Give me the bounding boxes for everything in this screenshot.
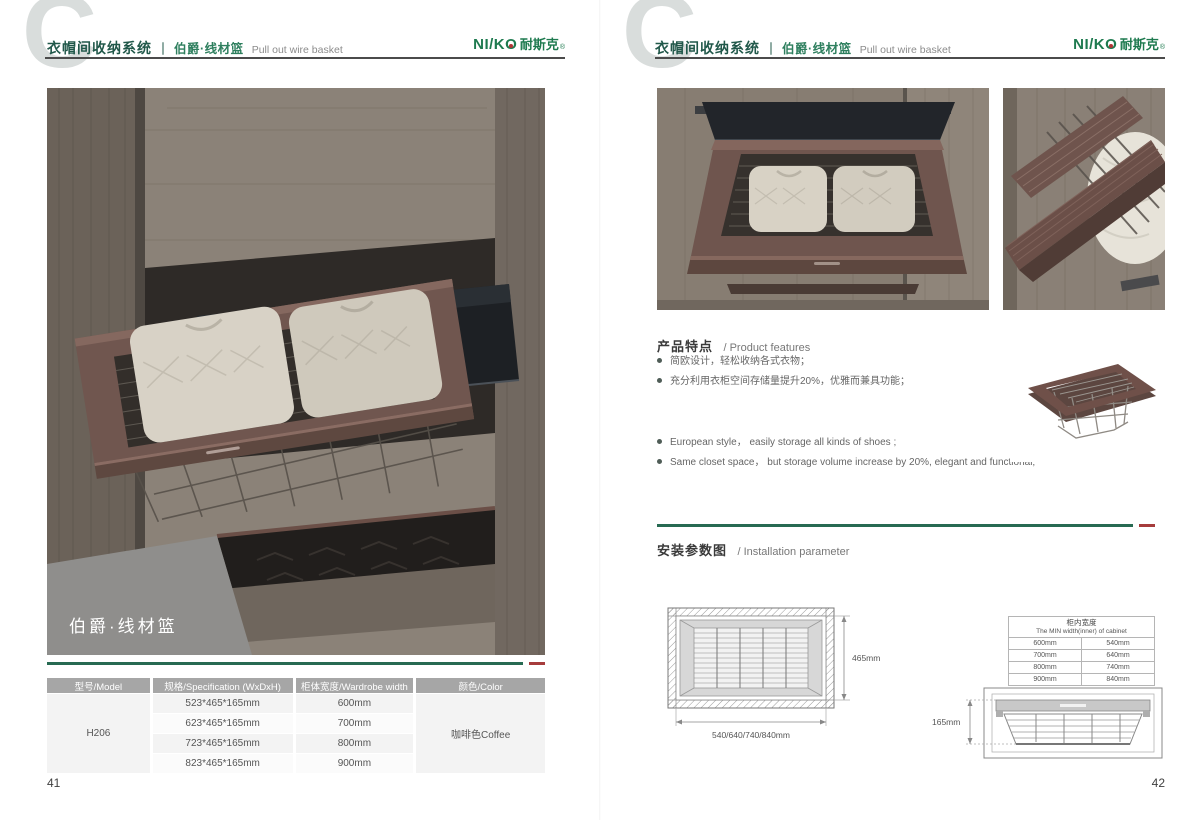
topview-diagram: 465mm 540/640/740/840mm	[660, 600, 890, 767]
min-width-table-title: 柜内宽度 The MIN width(inner) of cabinet	[1009, 617, 1155, 638]
sideview-drawing: 165mm	[932, 684, 1172, 764]
sideview-diagram: 165mm	[932, 684, 1172, 769]
header-divider: ｜	[157, 40, 169, 57]
detail-photo-corner	[1003, 88, 1165, 310]
accent-green-bar	[657, 524, 1133, 527]
basket-topdown-illustration	[657, 88, 989, 310]
table-row: 600mm 540mm	[1009, 638, 1155, 650]
cell-width-0: 600mm	[296, 694, 414, 713]
page-header: 衣帽间收纳系统 ｜ 伯爵·线材篮 Pull out wire basket	[47, 38, 343, 58]
accent-red-bar	[1139, 524, 1155, 527]
registered-mark: ®	[1160, 44, 1165, 51]
cell-spec-1: 623*465*165mm	[153, 714, 293, 733]
cell-width-3: 900mm	[296, 754, 414, 773]
cell-spec-0: 523*465*165mm	[153, 694, 293, 713]
table-row: 700mm 640mm	[1009, 650, 1155, 662]
nisko-logo: NI/KO 耐斯克 ®	[1073, 34, 1165, 53]
page-spine-divider	[599, 0, 601, 820]
header-product-subtitle: Pull out wire basket	[252, 44, 343, 56]
detail-photo-top	[657, 88, 989, 310]
wire-basket-render-illustration	[1010, 330, 1168, 462]
col-header-model: 型号/Model	[47, 678, 150, 693]
depth-dimension-label: 465mm	[852, 653, 880, 663]
registered-mark: ®	[560, 44, 565, 51]
wardrobe-photo-illustration	[47, 88, 545, 655]
catalog-spread: C 衣帽间收纳系统 ｜ 伯爵·线材篮 Pull out wire basket …	[0, 0, 1200, 820]
accent-green-bar	[47, 662, 523, 665]
cell-width-1: 700mm	[296, 714, 414, 733]
page-number-right: 42	[1152, 776, 1165, 790]
nisko-logo: NI/KO 耐斯克 ®	[473, 34, 565, 53]
min-width-table: 柜内宽度 The MIN width(inner) of cabinet 600…	[1008, 616, 1155, 686]
page-right: C 衣帽间收纳系统 ｜ 伯爵·线材篮 Pull out wire basket …	[600, 0, 1200, 820]
header-product-subtitle: Pull out wire basket	[860, 44, 951, 56]
page-left: C 衣帽间收纳系统 ｜ 伯爵·线材篮 Pull out wire basket …	[0, 0, 600, 820]
main-photo: 伯爵·线材篮	[47, 88, 545, 655]
header-product-title: 伯爵·线材篮	[782, 38, 852, 57]
header-divider: ｜	[765, 40, 777, 57]
features-bullets-cn: 简欧设计，轻松收纳各式衣物； 充分利用衣柜空间存储量提升20%，优雅而兼具功能；	[657, 352, 910, 392]
col-header-spec: 规格/Specification (WxDxH)	[153, 678, 293, 693]
header-system-title: 衣帽间收纳系统	[655, 38, 760, 58]
feature-cn-1: 简欧设计，轻松收纳各式衣物；	[657, 352, 910, 372]
header-product-title: 伯爵·线材篮	[174, 38, 244, 57]
page-number-left: 41	[47, 776, 60, 790]
accent-line	[47, 662, 545, 665]
topview-drawing: 465mm 540/640/740/840mm	[660, 600, 890, 762]
logo-o-with-dot: O	[505, 36, 517, 53]
photo-caption: 伯爵·线材篮	[69, 612, 178, 637]
width-dimension-label: 540/640/740/840mm	[712, 730, 790, 740]
table-row: 800mm 740mm	[1009, 662, 1155, 674]
spec-table: 型号/Model 规格/Specification (WxDxH) 柜体宽度/W…	[47, 678, 545, 773]
cell-color: 咖啡色Coffee	[416, 694, 545, 773]
cell-model: H206	[47, 694, 150, 773]
cell-spec-3: 823*465*165mm	[153, 754, 293, 773]
cell-width-2: 800mm	[296, 734, 414, 753]
col-header-width: 柜体宽度/Wardrobe width	[296, 678, 414, 693]
installation-heading: 安装参数图 / Installation parameter	[657, 540, 849, 560]
cell-spec-2: 723*465*165mm	[153, 734, 293, 753]
product-render	[1010, 330, 1168, 462]
col-header-color: 颜色/Color	[416, 678, 545, 693]
features-bullets-en: European style， easily storage all kinds…	[657, 433, 1035, 473]
feature-en-2: Same closet space， but storage volume in…	[657, 453, 1035, 473]
header-system-title: 衣帽间收纳系统	[47, 38, 152, 58]
accent-line	[657, 524, 1155, 527]
accent-red-bar	[529, 662, 545, 665]
page-header: 衣帽间收纳系统 ｜ 伯爵·线材篮 Pull out wire basket	[655, 38, 951, 58]
basket-corner-illustration	[1003, 88, 1165, 310]
height-dimension-label: 165mm	[932, 717, 960, 727]
logo-o-with-dot: O	[1105, 36, 1117, 53]
feature-en-1: European style， easily storage all kinds…	[657, 433, 1035, 453]
feature-cn-2: 充分利用衣柜空间存储量提升20%，优雅而兼具功能；	[657, 372, 910, 392]
